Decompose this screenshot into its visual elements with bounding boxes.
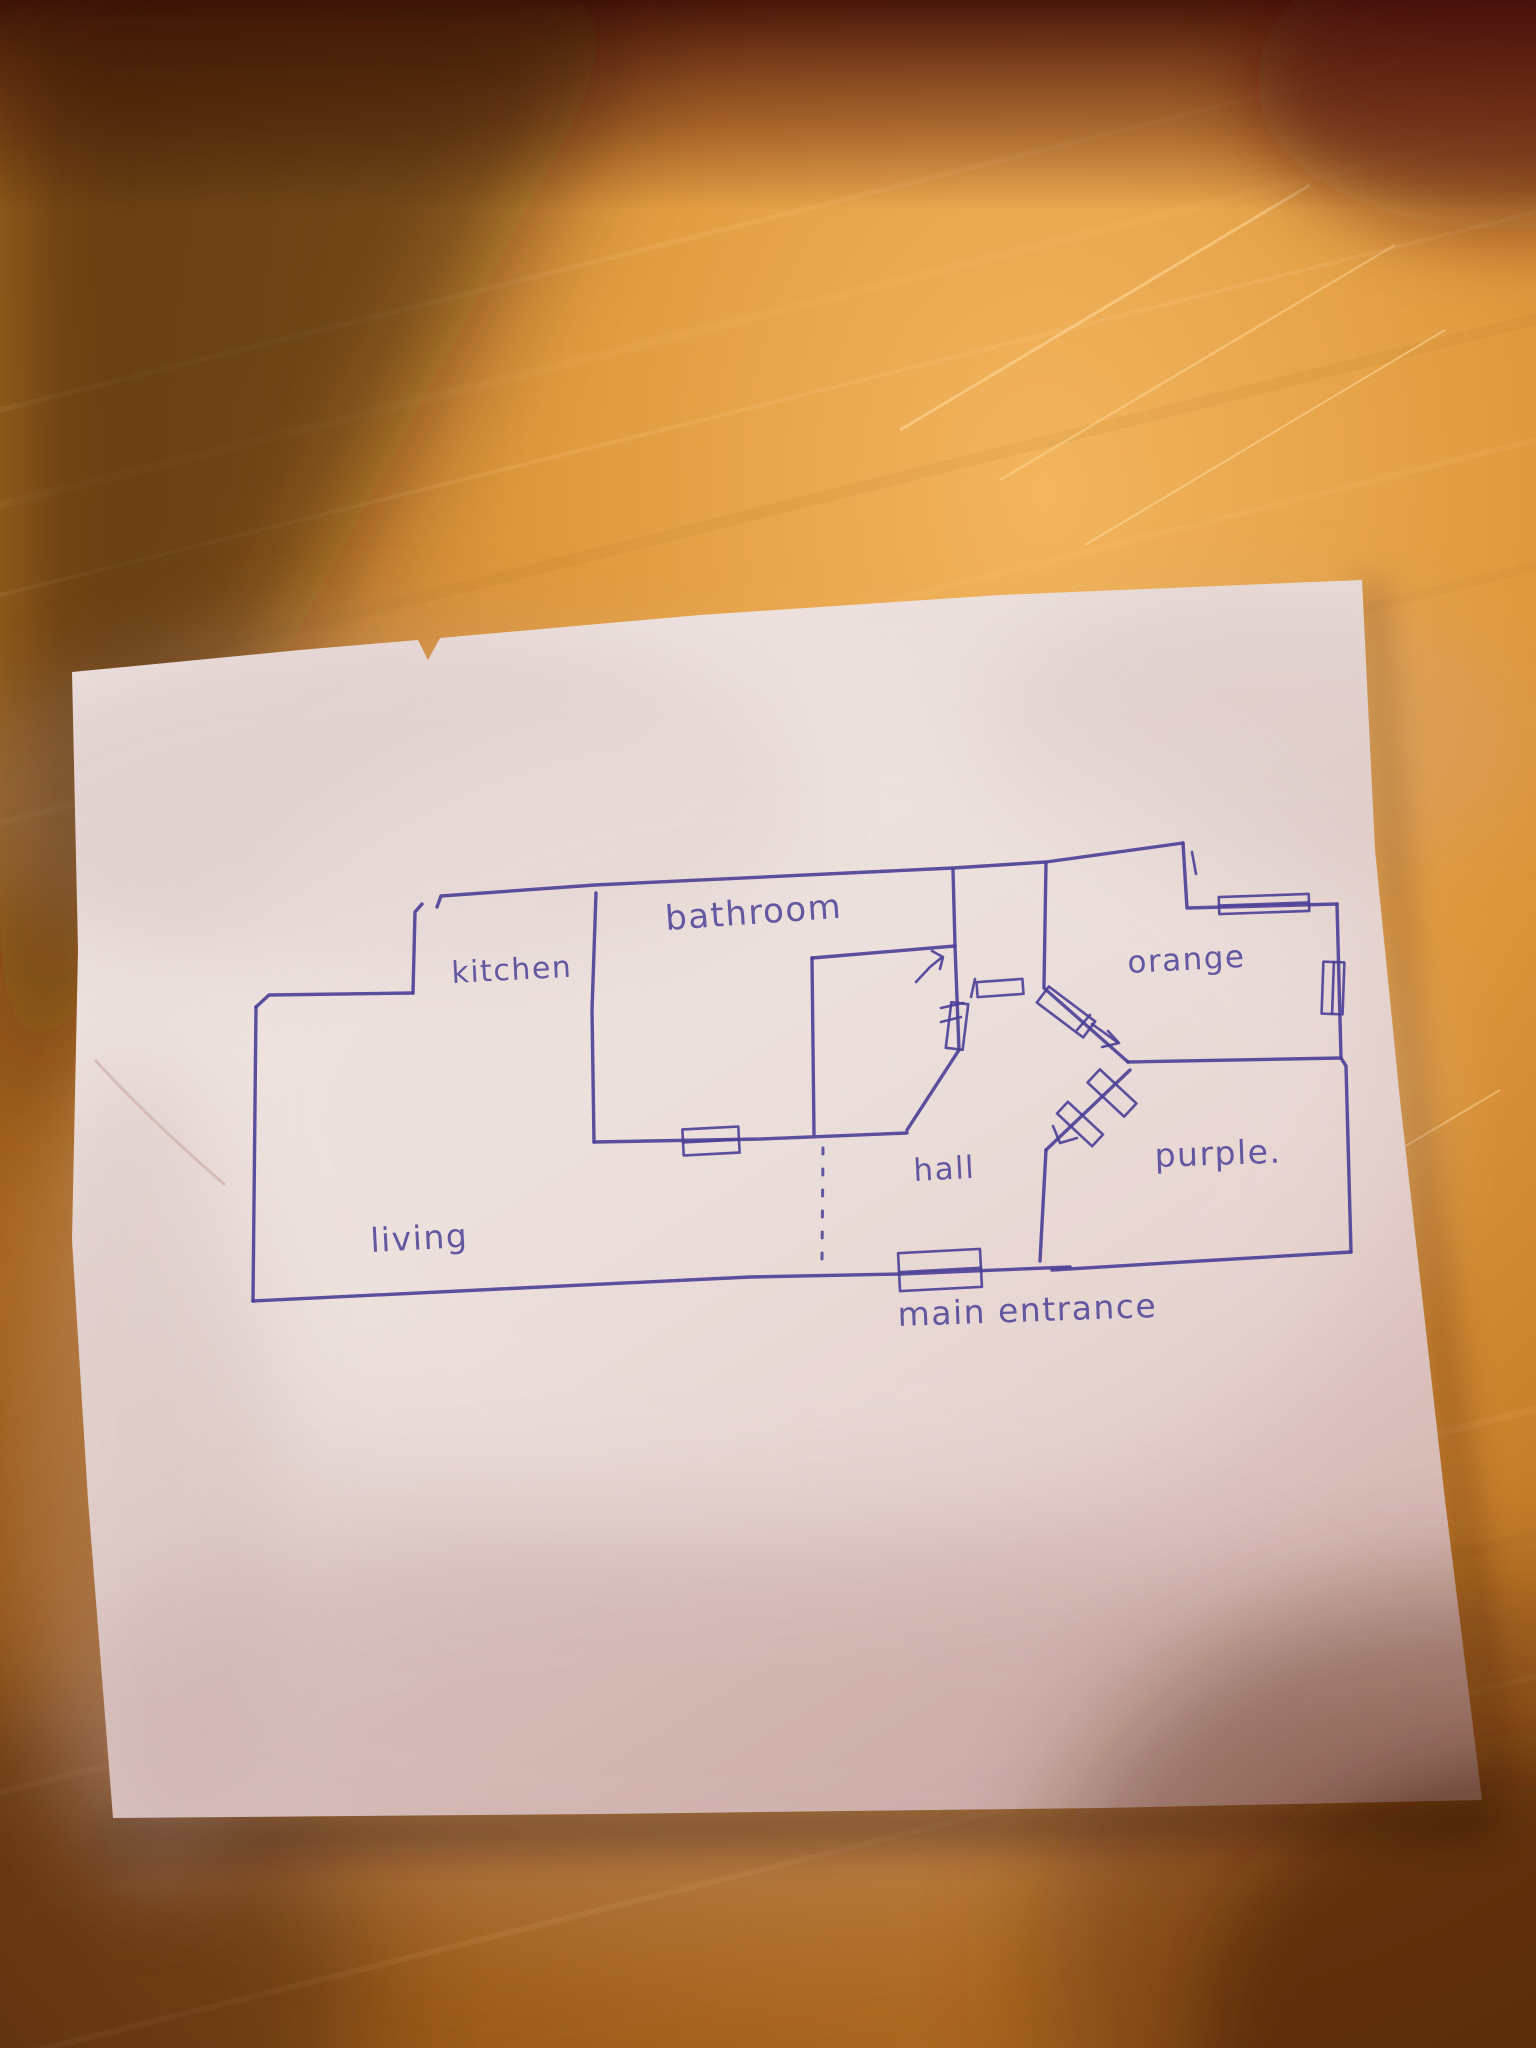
paper-highlight-center xyxy=(160,690,1400,1550)
scene: kitchen bathroom orange hall purple. liv… xyxy=(0,0,1536,2048)
room-label-living: living xyxy=(369,1216,469,1260)
wall-corridor-east xyxy=(1044,863,1046,986)
room-label-purple: purple. xyxy=(1154,1132,1282,1175)
room-label-hall: hall xyxy=(913,1150,977,1189)
photo-of-floor-plan-sketch: kitchen bathroom orange hall purple. liv… xyxy=(0,0,1536,2048)
room-label-orange: orange xyxy=(1127,939,1247,981)
room-label-kitchen: kitchen xyxy=(451,950,574,991)
wall-closet-west xyxy=(812,958,814,1134)
wall-bathroom-east xyxy=(953,869,955,946)
